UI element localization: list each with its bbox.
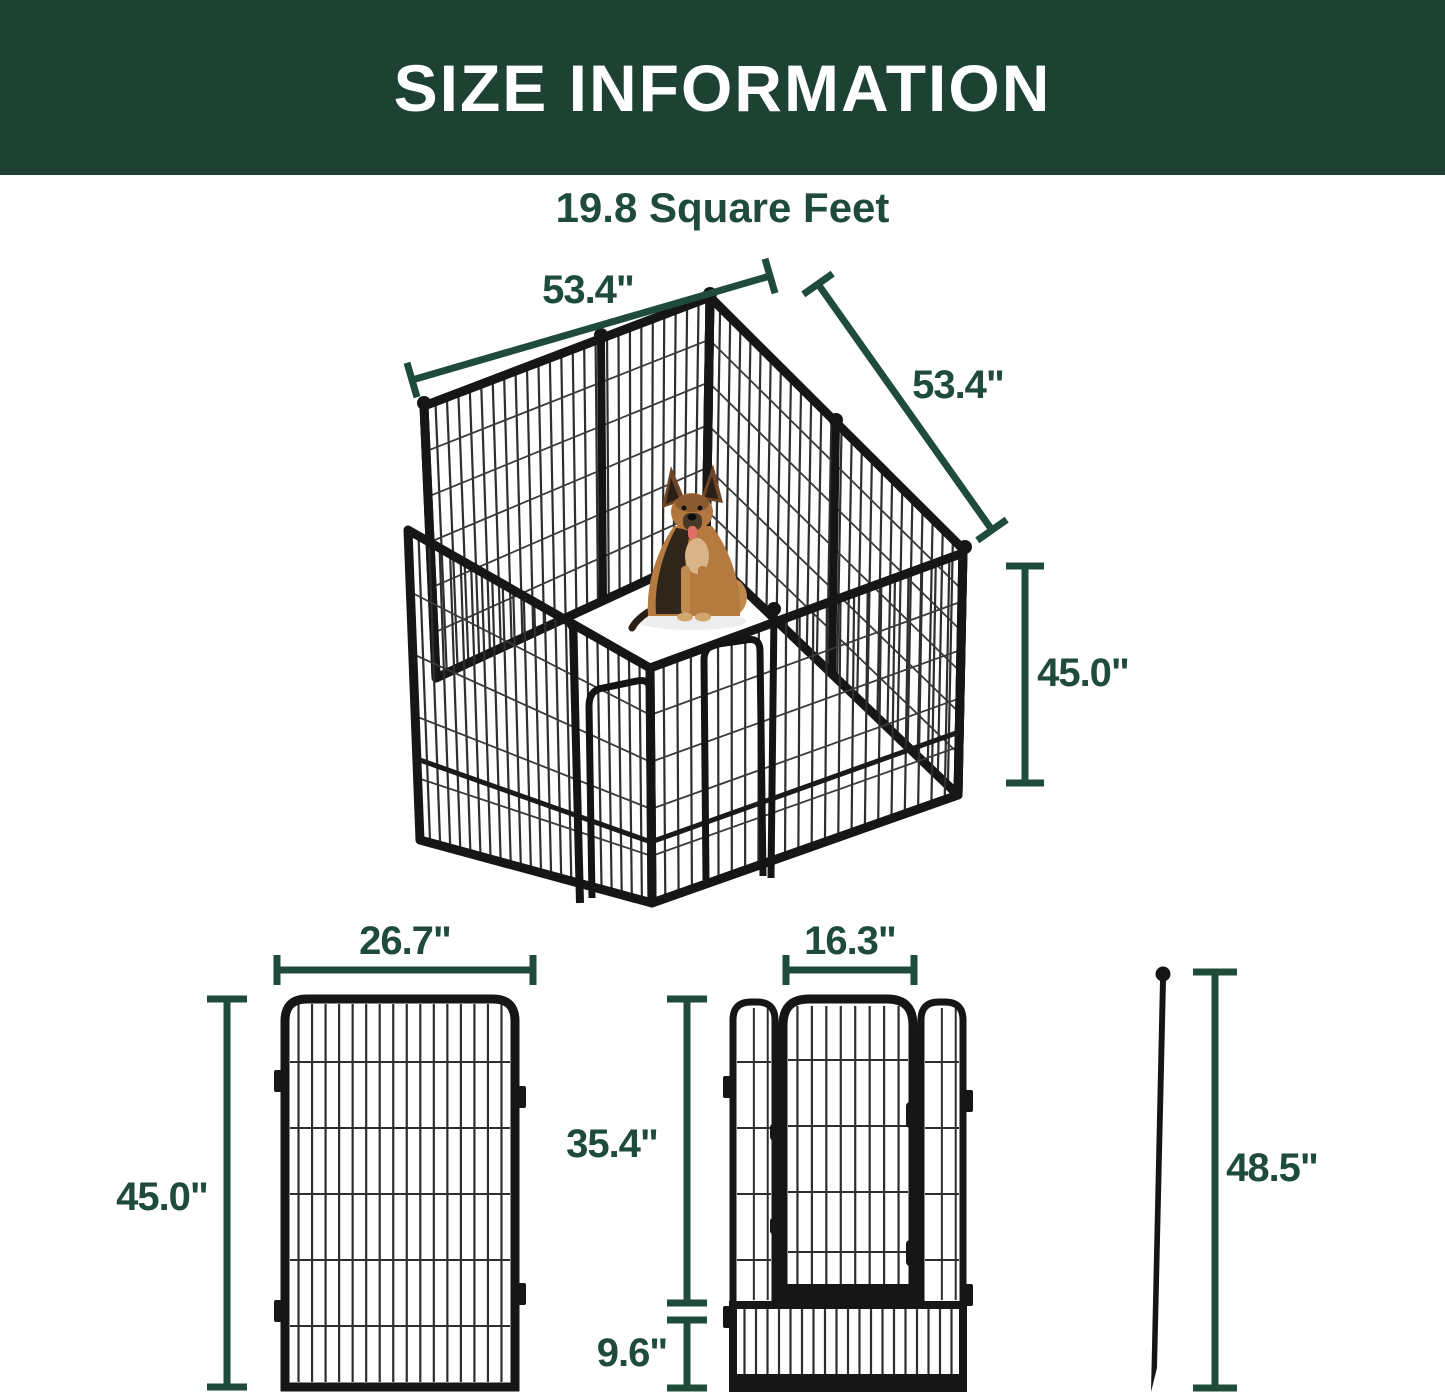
single-panel-diagram (207, 955, 533, 1387)
size-diagram-graphic: 53.4" 53.4" 45.0" 26.7" 45.0" 16.3" 35.4… (0, 0, 1445, 1395)
panel-height-label: 45.0" (116, 1175, 208, 1219)
door-panel-diagram (667, 955, 973, 1388)
door-bottom-height-label: 9.6" (597, 1331, 668, 1375)
door-height-label: 35.4" (566, 1122, 658, 1166)
playpen-dimension-lines (407, 259, 1044, 783)
pen-height-label: 45.0" (1037, 651, 1129, 695)
door-width-label: 16.3" (804, 919, 896, 963)
stake-height-label: 48.5" (1226, 1146, 1318, 1190)
panel-width-label: 26.7" (359, 919, 451, 963)
ground-stake-diagram (1151, 967, 1237, 1393)
pen-width-label: 53.4" (542, 268, 634, 312)
pen-depth-label: 53.4" (912, 363, 1004, 407)
